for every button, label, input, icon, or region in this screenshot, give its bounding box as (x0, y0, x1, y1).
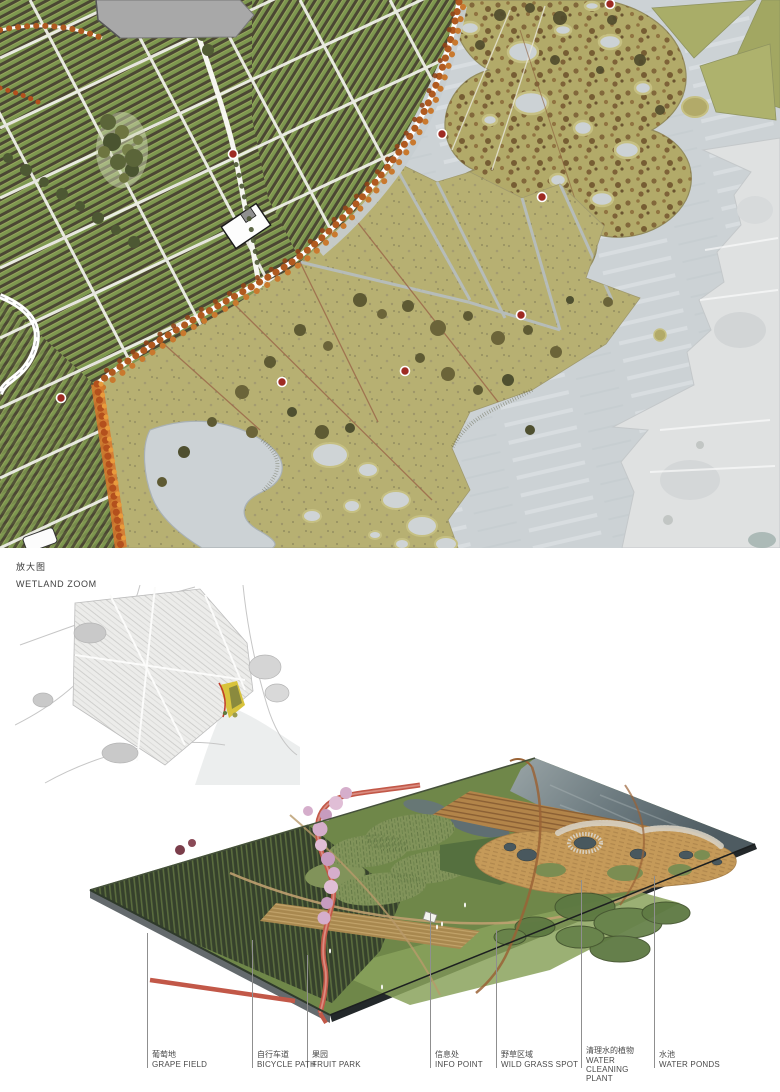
legend-label-water-cleaning-plant: 清理水的植物 WATER CLEANING PLANT (586, 1046, 652, 1083)
building-gray (96, 0, 254, 38)
masterplan-map (0, 0, 780, 548)
legend-label-info-point: 信息处 INFO POINT (435, 1050, 483, 1069)
reed-field (475, 823, 736, 894)
label-cn: 自行车道 (257, 1050, 316, 1060)
legend-label-fruit-park: 果园 FRUIT PARK (312, 1050, 361, 1069)
leader-bicycle-path (252, 940, 253, 1068)
label-en: WATER PONDS (659, 1060, 720, 1069)
section-title-cn: 放大图 (16, 562, 97, 573)
label-cn: 野草区域 (501, 1050, 578, 1060)
label-en: FRUIT PARK (312, 1060, 361, 1069)
label-cn: 水池 (659, 1050, 720, 1060)
leader-water-cleaning (581, 880, 582, 1068)
axonometric-rendering (80, 755, 760, 1025)
leader-water-ponds (654, 876, 655, 1068)
label-cn: 清理水的植物 (586, 1046, 652, 1056)
leader-info-point (430, 912, 431, 1068)
label-cn: 果园 (312, 1050, 361, 1060)
label-en: GRAPE FIELD (152, 1060, 207, 1069)
leader-wild-grass (496, 930, 497, 1068)
label-cn: 葡萄地 (152, 1050, 207, 1060)
label-cn: 信息处 (435, 1050, 483, 1060)
label-en: WATER CLEANING PLANT (586, 1056, 652, 1083)
legend-label-grape-field: 葡萄地 GRAPE FIELD (152, 1050, 207, 1069)
masterplan-map-graphic (0, 0, 780, 548)
label-en: INFO POINT (435, 1060, 483, 1069)
presentation-page: 放大图 WETLAND ZOOM (0, 0, 780, 1092)
legend-label-wild-grass-spot: 野草区域 WILD GRASS SPOT (501, 1050, 578, 1069)
label-en: BICYCLE PATH (257, 1060, 316, 1069)
legend-label-bicycle-path: 自行车道 BICYCLE PATH (257, 1050, 316, 1069)
legend-label-water-ponds: 水池 WATER PONDS (659, 1050, 720, 1069)
leader-grape-field (147, 933, 148, 1068)
label-en: WILD GRASS SPOT (501, 1060, 578, 1069)
